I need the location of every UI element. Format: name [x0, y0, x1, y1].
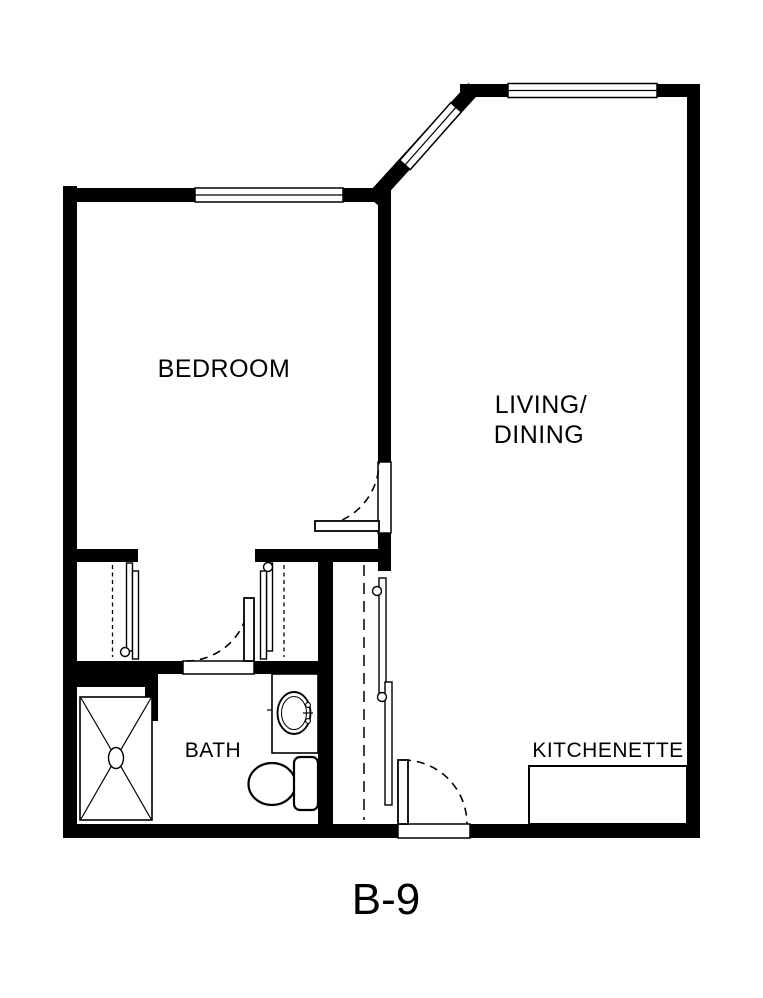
- hall-closet-door-panel-lower: [385, 682, 392, 805]
- bottom-wall-right-segment: [470, 824, 700, 838]
- toilet-bowl: [249, 763, 296, 805]
- shower-stall: [80, 697, 152, 820]
- bedroom-door: [315, 462, 391, 533]
- bedroom-closet-left: [113, 563, 139, 659]
- hall-closet-pull-upper: [373, 587, 382, 596]
- sink-basin-inner: [282, 697, 307, 730]
- bedroom-door-swing-arc: [315, 462, 379, 526]
- sink-faucet-handle: [306, 719, 311, 724]
- bedroom-living-divider-wall: [378, 200, 391, 462]
- living-dining-label-line2: DINING: [494, 421, 585, 449]
- angled-corner-window: [400, 103, 462, 170]
- bedroom-closet-right: [261, 563, 285, 660]
- closet-left-door-panel-a: [127, 563, 133, 651]
- bedroom-bottom-wall-left: [63, 549, 138, 562]
- bedroom-door-threshold: [378, 462, 391, 533]
- toilet: [249, 757, 319, 810]
- entry-door-swing-arc: [403, 760, 467, 824]
- hall-closet: [364, 565, 392, 820]
- floor-plan-drawing: BEDROOM LIVING/ DINING BATH KITCHENETTE …: [0, 0, 763, 998]
- bath-door-leaf: [244, 598, 254, 661]
- sink-faucet-handle: [306, 703, 311, 708]
- angled-window-mullion: [405, 107, 456, 165]
- plan-code-label: B-9: [352, 875, 420, 924]
- bottom-wall-left-segment: [63, 824, 398, 838]
- closet-right-door-panel-b: [261, 571, 267, 659]
- bath-door-threshold: [183, 661, 254, 674]
- entry-door-leaf: [398, 760, 408, 824]
- bedroom-window: [195, 188, 343, 202]
- kitchenette-counter: [529, 766, 687, 824]
- closet-right-door-pull: [264, 563, 273, 572]
- closet-left-door-pull: [121, 648, 130, 657]
- bath-label: BATH: [185, 739, 241, 762]
- hall-closet-pull-lower: [378, 693, 387, 702]
- bedroom-door-leaf: [315, 521, 379, 531]
- closet-left-door-panel-b: [133, 571, 139, 659]
- bath-top-wall-left: [63, 661, 183, 674]
- kitchenette-label: KITCHENETTE: [532, 739, 683, 762]
- right-exterior-wall: [687, 84, 700, 838]
- bath-east-wall: [318, 549, 333, 824]
- living-room-window: [508, 84, 657, 98]
- bath-door-swing-arc: [186, 598, 249, 661]
- bedroom-label: BEDROOM: [158, 355, 291, 383]
- bathroom-sink: [267, 674, 318, 753]
- left-exterior-wall: [63, 186, 77, 838]
- toilet-tank: [294, 757, 318, 810]
- shower-top-wall: [63, 674, 158, 687]
- bath-door: [183, 598, 254, 674]
- shower-drain: [109, 748, 124, 769]
- entry-door-threshold: [398, 824, 470, 838]
- closet-right-door-panel-a: [267, 563, 273, 651]
- living-dining-label-line1: LIVING/: [495, 391, 587, 419]
- floor-plan-page: BEDROOM LIVING/ DINING BATH KITCHENETTE …: [0, 0, 763, 998]
- entry-door: [398, 760, 470, 838]
